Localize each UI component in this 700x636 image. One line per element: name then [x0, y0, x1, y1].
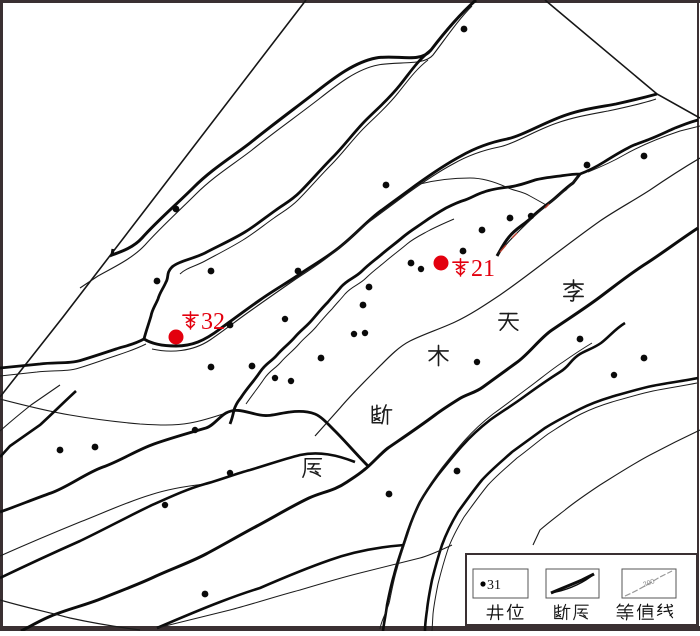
svg-text:32: 32 [201, 309, 225, 335]
svg-text:21: 21 [471, 256, 495, 282]
svg-text:31: 31 [487, 578, 501, 593]
